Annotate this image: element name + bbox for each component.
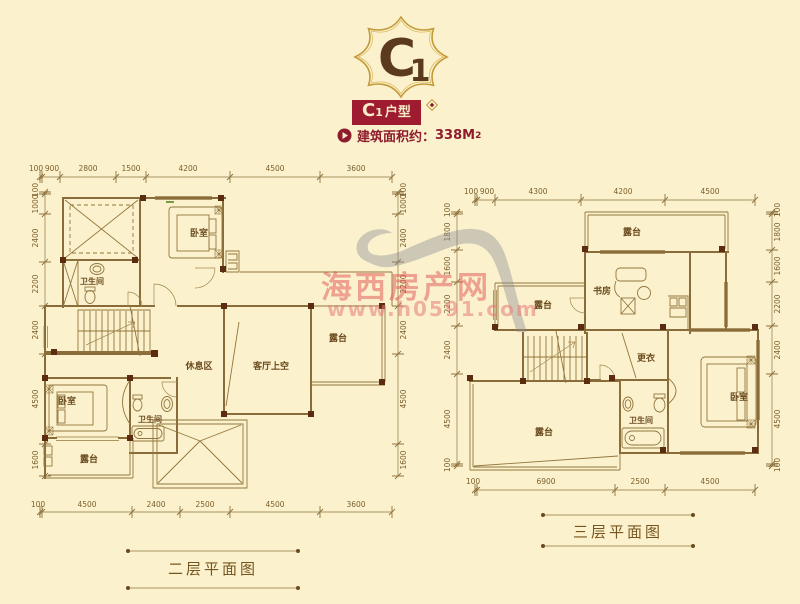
dim-label: 4500 [77,500,96,509]
dim-label: 100 [464,187,479,196]
dim-label: 4500 [773,409,782,428]
floor3-title: 三层平面图 [573,523,663,541]
star-mark [215,206,223,214]
dim-label: 1800 [773,222,782,241]
play-icon [337,128,352,143]
dim-label: 2400 [31,320,40,339]
logo: C 1 [348,10,458,104]
dim-label: 2800 [78,164,97,173]
watermark-url: www.h0591.com [327,297,539,321]
dim-label: 100 [773,203,782,218]
toilet [133,395,142,399]
area-sup: 2 [475,131,481,141]
room-label-bedroom-top: 卧室 [190,227,208,239]
dim-label: 4500 [443,409,452,428]
floor2-title: 二层平面图 [168,560,258,578]
dim-label: 1600 [399,450,408,469]
chair [638,287,651,300]
dim-label: 1000 [399,194,408,213]
dim-label: 2500 [630,477,649,486]
room-label-bedroom-lower: 卧室 [58,395,76,407]
badge-letter: C [362,101,375,121]
floor2-plan: 100 900 2800 1500 4200 4500 3600 100 100… [29,164,408,590]
unit-type-badge: C1户型 [352,100,421,125]
room-label-terrace-big: 露台 [535,426,553,438]
diamond-icon [425,98,439,112]
floor3-room-labels: 露台 书房 露台 更衣 卧室 卫生间 露台 [534,226,748,438]
dim-label: 2400 [399,320,408,339]
dim-label: 2400 [399,228,408,247]
room-label-terrace-right: 露台 [329,332,347,344]
room-label-bath: 卫生间 [629,415,653,425]
dim-label: 2400 [773,340,782,359]
dim-label: 3600 [346,500,365,509]
floor2-fixtures [44,206,223,466]
badge-suffix: 户型 [385,103,411,123]
area-label: 建筑面积约： [357,126,435,145]
room-label-living-void: 客厅上空 [252,360,289,372]
floor2-room-labels: 卫生间 卧室 休息区 客厅上空 露台 卧室 卫生间 露台 [58,227,347,465]
room-label-bedroom: 卧室 [730,391,748,403]
room-label-dressing: 更衣 [637,352,655,364]
dim-label: 4200 [613,187,632,196]
floor3-dimensions: 100 900 4300 4200 4500 100 1800 1600 220… [443,187,782,496]
bed [701,357,756,427]
room-label-study: 书房 [593,285,611,297]
sink [162,397,173,412]
dim-label: 2400 [146,500,165,509]
dim-label: 4500 [31,389,40,408]
toilet [654,394,665,398]
dim-label: 900 [45,164,60,173]
dim-label: 2400 [443,340,452,359]
dim-label: 2200 [773,294,782,313]
dim-label: 4200 [178,164,197,173]
dim-label: 4500 [265,164,284,173]
dim-label: 100 [29,164,44,173]
dim-label: 4500 [700,477,719,486]
floor2-title-block: 二层平面图 [126,549,300,590]
area-row: 建筑面积约：338M2 [337,126,481,145]
dim-label: 3600 [346,164,365,173]
room-label-terrace-top: 露台 [623,226,641,238]
dim-label: 4300 [528,187,547,196]
dim-label: 4500 [700,187,719,196]
dim-label: 1600 [31,450,40,469]
dim-label: 2500 [195,500,214,509]
dim-label: 900 [480,187,495,196]
curved-wall [123,380,131,424]
sink [623,397,633,411]
dim-label: 100 [31,500,46,509]
dim-label: 4500 [265,500,284,509]
room-label-bath-lower: 卫生间 [138,414,162,424]
floor3-title-block: 三层平面图 [541,513,695,548]
sink [90,264,104,275]
room-label-bath-top: 卫生间 [80,276,104,286]
desk [616,268,646,281]
logo-digit-1: 1 [410,54,431,89]
dim-label: 100 [443,203,452,218]
unit-type-badge-row: C1户型 [352,100,439,125]
floor3-walls [470,212,760,470]
dim-label: 1500 [121,164,140,173]
dim-label: 100 [773,458,782,473]
dim-label: 4500 [399,389,408,408]
star-mark [747,356,755,364]
dim-label: 2400 [31,228,40,247]
dim-label: 2200 [31,274,40,293]
room-label-terrace-lower: 露台 [80,453,98,465]
area-value: 338M [435,128,475,143]
dim-label: 1600 [773,256,782,275]
curved-wall [668,378,676,404]
dim-label: 100 [443,458,452,473]
dim-label: 6900 [536,477,555,486]
room-label-lounge: 休息区 [184,360,212,372]
dim-label: 100 [466,477,481,486]
badge-digit: 1 [375,103,383,123]
dim-label: 1000 [31,194,40,213]
